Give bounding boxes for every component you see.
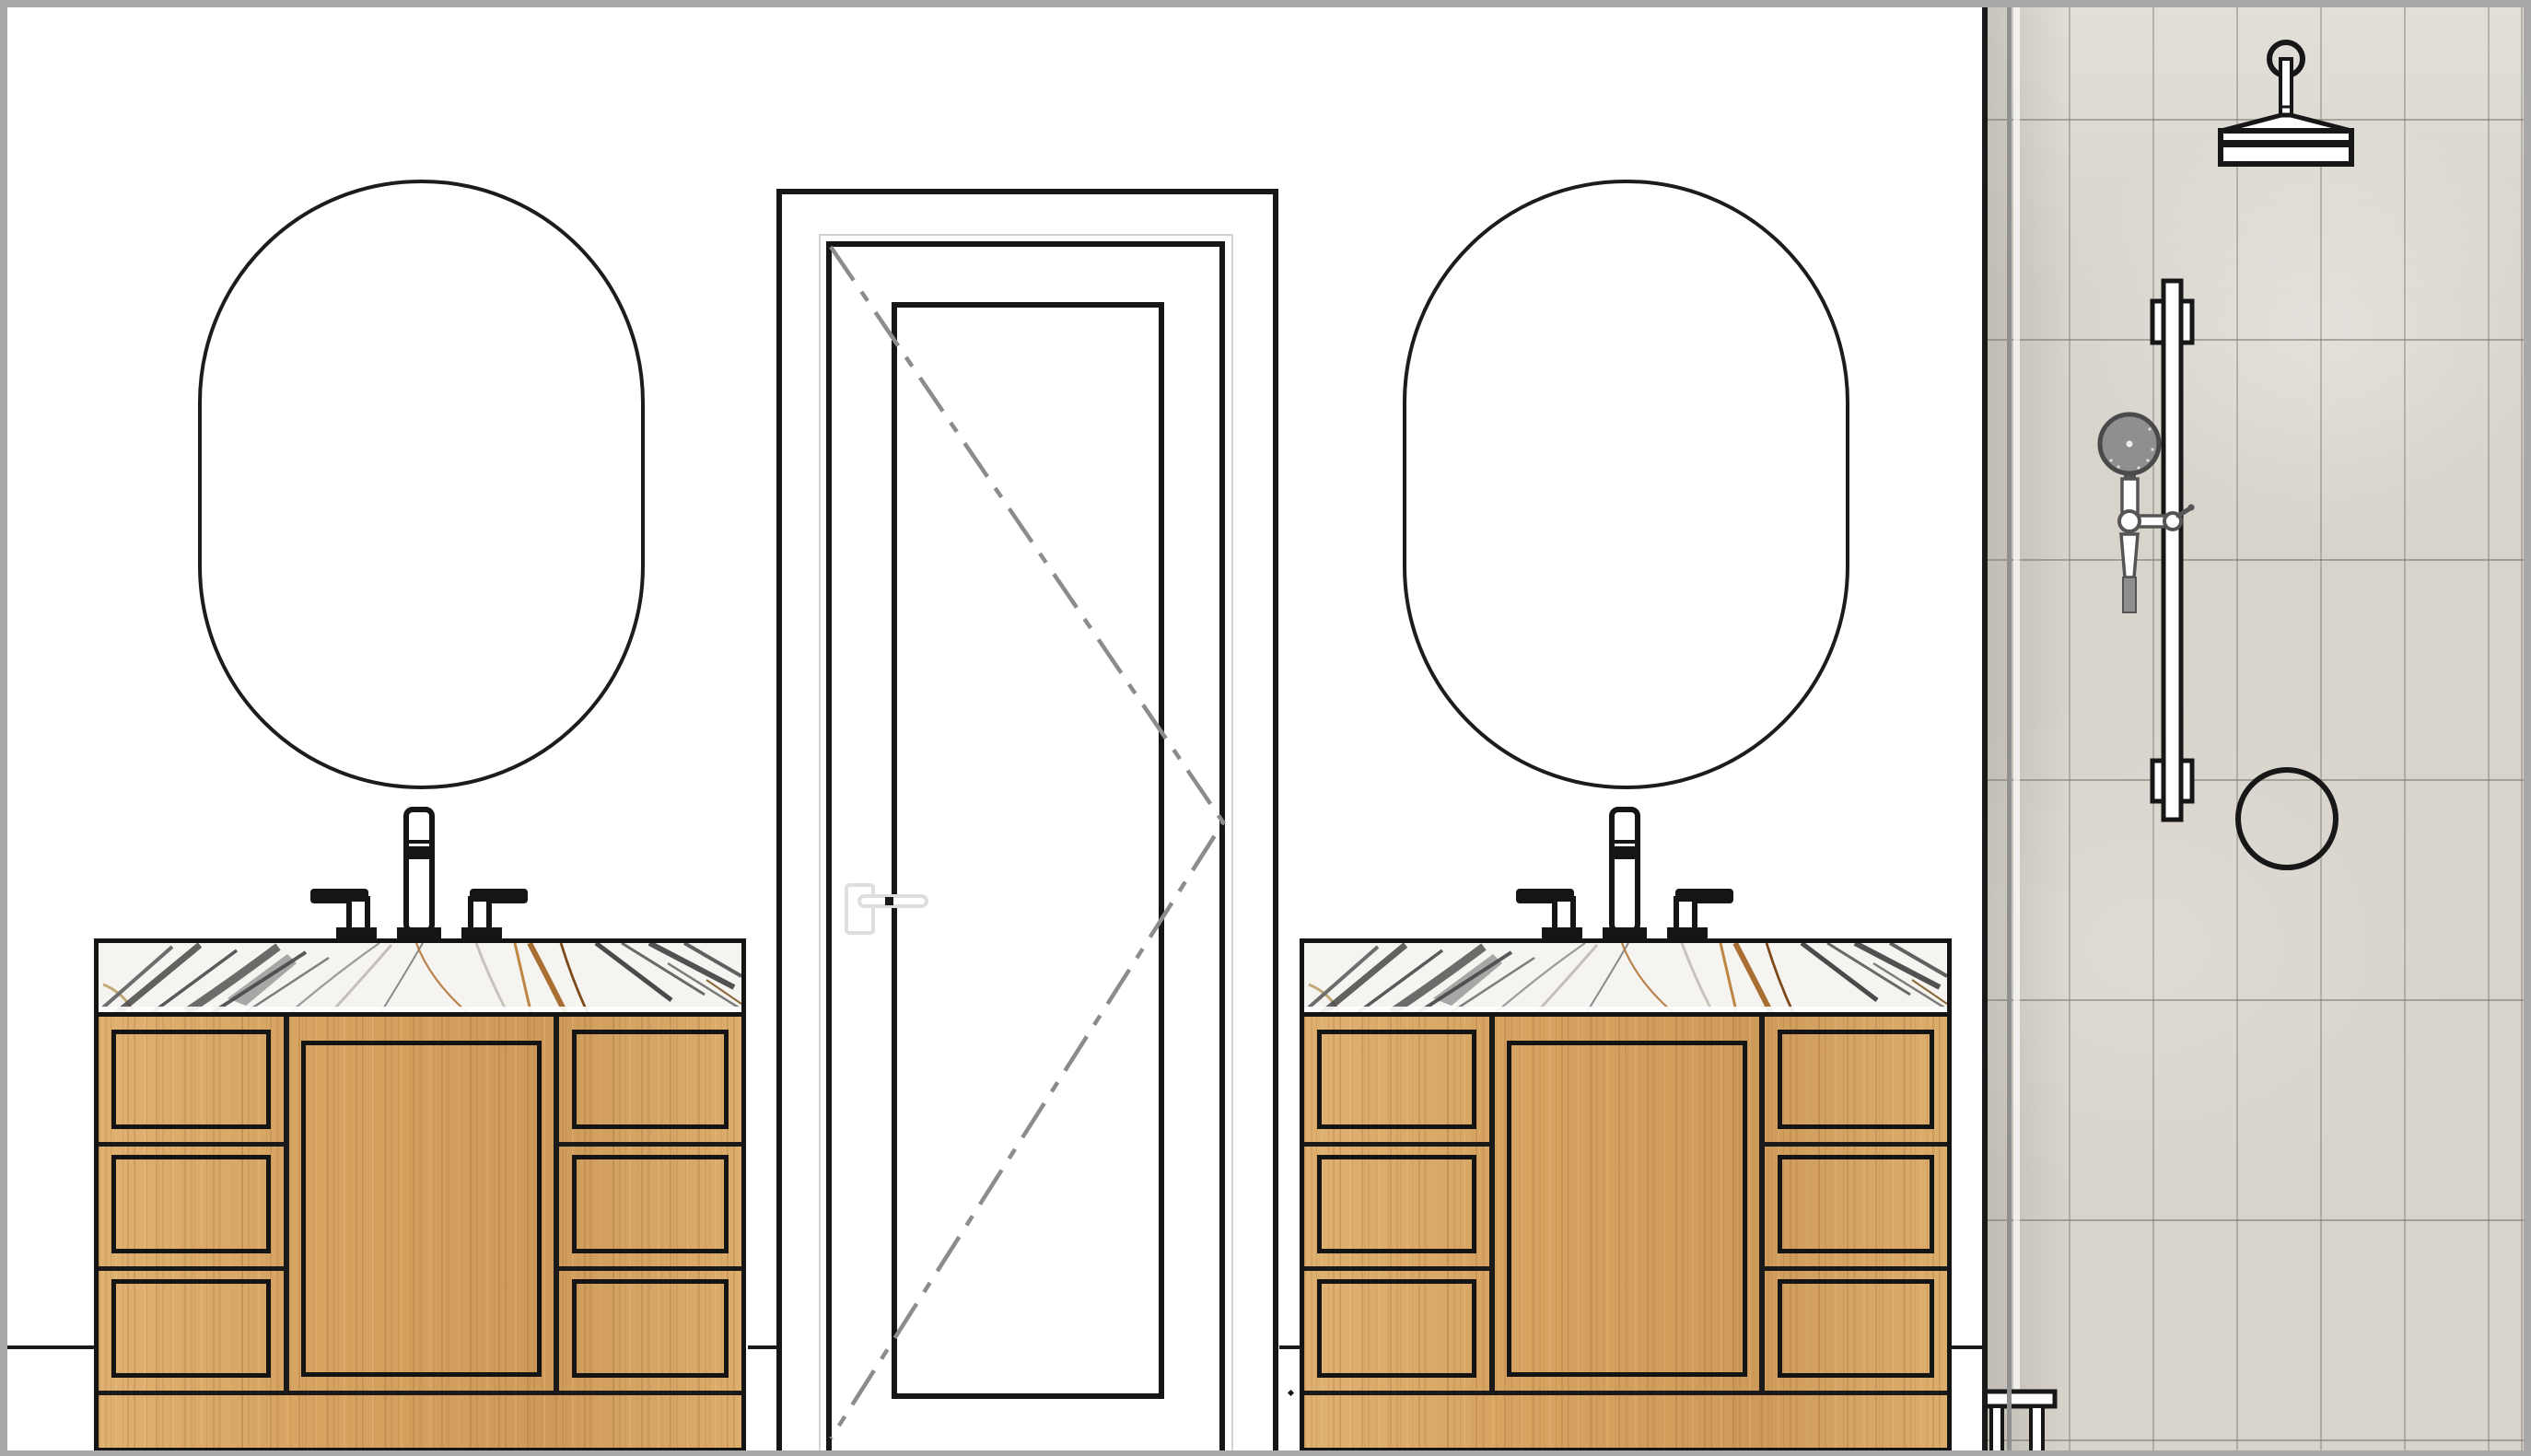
left-vanity-cabinet (94, 1012, 746, 1452)
right-faucet-icon (1516, 807, 1733, 939)
elevation-drawing (0, 0, 2531, 1456)
drawer-front (111, 1155, 271, 1253)
cabinet-bottom-rail-line (1304, 1391, 1947, 1395)
drawer-front (572, 1030, 729, 1129)
cabinet-stile (1759, 1017, 1765, 1391)
drawer-front (1778, 1030, 1934, 1129)
door-handle-spindle (885, 897, 893, 905)
cabinet-door-panel (1507, 1041, 1747, 1377)
marble-texture (99, 943, 741, 1012)
drawer-front (572, 1155, 729, 1253)
cabinet-bottom-rail-line (99, 1391, 741, 1395)
page-border-bottom (0, 1450, 2531, 1456)
drawer-divider (559, 1266, 741, 1271)
left-faucet-icon (310, 807, 528, 939)
page-border-right (2524, 0, 2531, 1456)
drawer-divider (559, 1142, 741, 1147)
drawer-front (1778, 1155, 1934, 1253)
right-vanity-countertop (1300, 938, 1952, 1017)
right-mirror-icon (1403, 180, 1849, 789)
drawer-divider (99, 1266, 284, 1271)
floor-line (1952, 1345, 1985, 1349)
drawer-front (1778, 1279, 1934, 1378)
left-mirror-icon (198, 180, 645, 789)
drawer-divider (1304, 1142, 1489, 1147)
right-vanity-cabinet (1300, 1012, 1952, 1452)
shower-valve-icon (2238, 770, 2336, 868)
floor-marker-dot (1288, 1390, 1294, 1396)
drawer-front (572, 1279, 729, 1378)
door-swing-icon (776, 189, 1278, 1450)
cabinet-stile (1489, 1017, 1495, 1391)
cabinet-stile (554, 1017, 559, 1391)
drawer-front (1317, 1279, 1476, 1378)
rain-shower-head-icon (2221, 42, 2351, 164)
stool-icon (1985, 1392, 2055, 1450)
cabinet-stile (284, 1017, 289, 1391)
drawer-divider (1304, 1266, 1489, 1271)
drawer-front (111, 1279, 271, 1378)
left-vanity-countertop (94, 938, 746, 1017)
glass-panel-edge-line (2007, 7, 2012, 1450)
marble-texture (1304, 943, 1947, 1012)
drawer-divider (1765, 1266, 1947, 1271)
drawer-front (1317, 1030, 1476, 1129)
shower-wall-corner-line (1982, 7, 1988, 1450)
drawer-front (111, 1030, 271, 1129)
slide-bar-icon (2152, 281, 2192, 820)
page-border-left (0, 0, 7, 1456)
cabinet-door-panel (301, 1041, 542, 1377)
floor-line (7, 1345, 95, 1349)
door-handle-backplate (845, 883, 875, 935)
drawer-front (1317, 1155, 1476, 1253)
shower-fixtures (1982, 7, 2531, 1450)
drawer-divider (99, 1142, 284, 1147)
page-border-top (0, 0, 2531, 7)
drawer-divider (1765, 1142, 1947, 1147)
